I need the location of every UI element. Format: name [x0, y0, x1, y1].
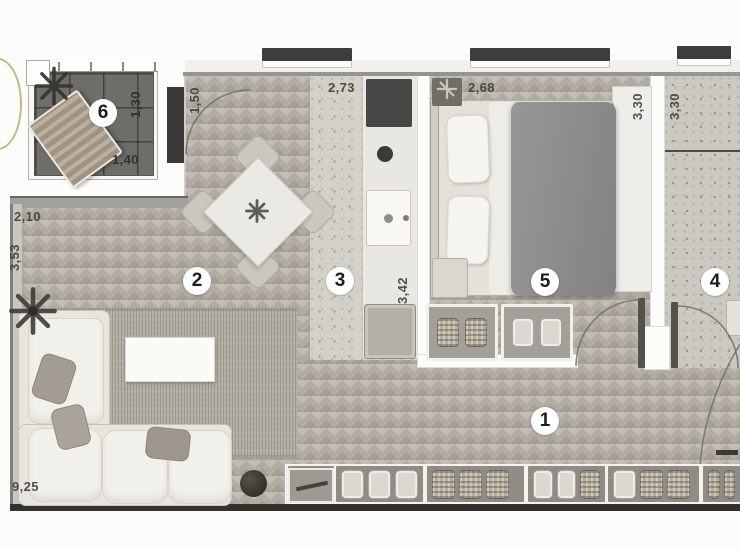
wardrobe-section — [608, 466, 699, 502]
plant-icon — [6, 284, 60, 338]
dim-balcony-door: 1,50 — [187, 80, 202, 114]
window-glass — [262, 48, 352, 61]
pillow — [446, 195, 490, 264]
dim-bathroom-depth: 3,30 — [667, 82, 682, 120]
door-arc — [576, 300, 640, 366]
coffee-table — [125, 337, 215, 382]
door-arc — [698, 342, 740, 468]
nightstand-plant-icon — [434, 76, 460, 102]
nightstand — [432, 258, 468, 298]
bathroom-door-leaf — [671, 302, 678, 368]
wicker-basket — [459, 470, 482, 499]
room-badge-balcony: 6 — [89, 99, 117, 127]
storage-bench — [426, 304, 498, 361]
sofa-pillow — [144, 426, 191, 462]
window-glass — [470, 48, 610, 61]
balcony-door — [167, 87, 184, 163]
wicker-basket — [640, 470, 663, 499]
wall-bedroom-bathroom — [650, 76, 665, 328]
shoes — [296, 481, 328, 492]
dim-bedroom-depth: 3,30 — [630, 82, 645, 120]
wicker-basket — [486, 470, 509, 499]
wardrobe-section — [528, 466, 605, 502]
sink-drain — [384, 214, 393, 223]
dim-kitchen-length: 3,42 — [395, 264, 410, 304]
window-living — [262, 48, 352, 68]
wardrobe-row — [285, 464, 740, 504]
faucet — [403, 215, 409, 221]
wicker-basket — [667, 470, 690, 499]
window-sill — [470, 61, 610, 68]
storage-box — [613, 470, 636, 499]
balcony-plant-icon — [32, 64, 76, 108]
blanket — [509, 102, 616, 296]
wardrobe-section — [427, 466, 524, 502]
wicker-basket — [724, 470, 736, 499]
wicker-basket — [465, 318, 487, 347]
storage-box — [540, 318, 562, 347]
window-sill — [677, 59, 731, 66]
floor-top-edge — [183, 72, 740, 76]
room-badge-bathroom: 4 — [701, 268, 729, 296]
pillow — [446, 114, 490, 183]
storage-box — [395, 470, 418, 499]
dim-living-left-depth: 3,53 — [7, 231, 22, 271]
dim-balcony-width: 1,40 — [112, 152, 139, 167]
wardrobe-section — [336, 466, 423, 502]
dim-living-top: 2,73 — [328, 80, 355, 95]
washing-machine — [364, 304, 416, 359]
wicker-basket — [437, 318, 459, 347]
cooktop — [366, 79, 412, 127]
storage-box — [557, 470, 577, 499]
room-badge-hallway: 1 — [531, 407, 559, 435]
shower-partition — [665, 150, 740, 152]
dim-living-left-width: 2,10 — [14, 209, 41, 224]
storage-bench — [501, 304, 573, 361]
floor-plan: 1 2 3 4 5 6 1,30 1,40 1,50 2,73 3,42 2,6… — [0, 0, 740, 550]
dim-balcony-depth: 1,30 — [128, 80, 143, 118]
window-glass — [677, 46, 731, 59]
wall-pier — [644, 326, 670, 370]
sink-bowl — [377, 146, 393, 162]
storage-box — [512, 318, 534, 347]
room-badge-kitchen: 3 — [326, 267, 354, 295]
window-bedroom — [470, 48, 610, 68]
window-bathroom — [677, 46, 731, 66]
wardrobe-section — [703, 466, 740, 502]
room-badge-bedroom: 5 — [531, 268, 559, 296]
table-plant-icon — [243, 197, 271, 225]
window-sill — [262, 61, 352, 68]
wicker-basket — [580, 470, 600, 499]
storage-box — [341, 470, 364, 499]
dim-total-width: 9,25 — [12, 479, 39, 494]
storage-box — [368, 470, 391, 499]
room-badge-living: 2 — [183, 267, 211, 295]
wall-living-top-left — [10, 196, 188, 208]
wicker-basket — [708, 470, 720, 499]
pouf — [240, 470, 267, 497]
wicker-basket — [432, 470, 455, 499]
dim-bedroom-width: 2,68 — [468, 80, 495, 95]
storage-box — [533, 470, 553, 499]
entry-bench — [288, 468, 334, 503]
kitchen-sink — [366, 190, 411, 246]
